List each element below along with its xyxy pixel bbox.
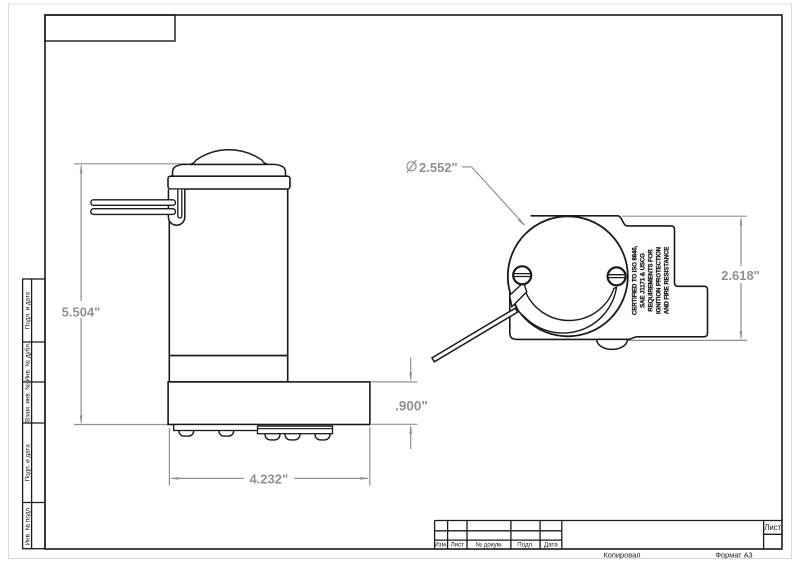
svg-text:Подп. и дата: Подп. и дата <box>25 444 32 482</box>
svg-text:2.552": 2.552" <box>419 160 458 175</box>
svg-text:AND FIRE RESISTANCE: AND FIRE RESISTANCE <box>664 247 671 315</box>
svg-text:2.618": 2.618" <box>721 268 760 283</box>
svg-text:CERTIFIED TO ISO 8846,: CERTIFIED TO ISO 8846, <box>632 246 639 316</box>
svg-text:Подп.: Подп. <box>517 542 534 549</box>
svg-text:Инв. № подл.: Инв. № подл. <box>25 506 32 545</box>
svg-text:Подл. и дата: Подл. и дата <box>25 291 32 329</box>
svg-text:Дата: Дата <box>544 542 558 549</box>
svg-text:Инв. № дубл.: Инв. № дубл. <box>24 342 32 381</box>
svg-text:№ докум.: № докум. <box>475 542 502 549</box>
svg-text:IGNITION PROTECTION: IGNITION PROTECTION <box>656 246 663 314</box>
svg-text:SAE J1171 & USCG: SAE J1171 & USCG <box>640 253 647 308</box>
svg-text:REQUIREMENTS FOR: REQUIREMENTS FOR <box>648 249 655 312</box>
svg-text:4.232": 4.232" <box>249 471 288 486</box>
svg-text:Взам. инв. №: Взам. инв. № <box>25 383 32 422</box>
svg-text:Изм.: Изм. <box>434 542 448 549</box>
svg-text:Копировал: Копировал <box>603 550 640 559</box>
svg-text:.900": .900" <box>395 399 428 414</box>
svg-text:Формат А3: Формат А3 <box>715 550 752 559</box>
svg-text:Лист: Лист <box>451 542 465 549</box>
svg-text:Лист: Лист <box>764 523 781 532</box>
svg-text:5.504": 5.504" <box>62 305 101 320</box>
